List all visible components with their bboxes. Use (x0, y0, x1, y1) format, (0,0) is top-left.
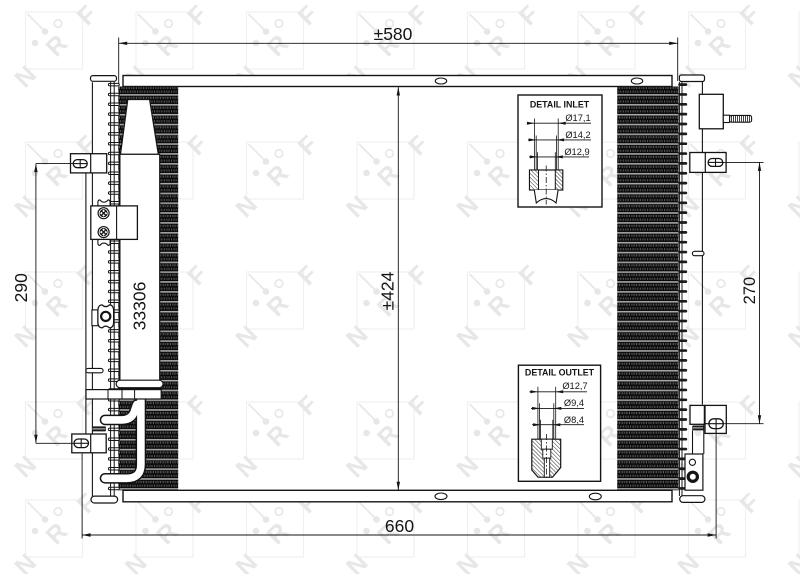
svg-text:Ø14,2: Ø14,2 (565, 130, 590, 140)
svg-text:Ø17,1: Ø17,1 (565, 113, 590, 123)
svg-text:33306: 33306 (130, 282, 150, 331)
svg-text:290: 290 (11, 273, 31, 302)
svg-text:DETAIL OUTLET: DETAIL OUTLET (525, 368, 595, 378)
svg-text:Ø9,4: Ø9,4 (564, 398, 584, 408)
svg-text:DETAIL INLET: DETAIL INLET (530, 100, 590, 110)
svg-text:±580: ±580 (374, 24, 413, 44)
svg-text:Ø12,9: Ø12,9 (564, 147, 589, 157)
svg-text:Ø8,4: Ø8,4 (564, 415, 584, 425)
svg-text:±424: ±424 (378, 271, 398, 310)
svg-text:Ø12,7: Ø12,7 (562, 381, 587, 391)
svg-text:660: 660 (385, 516, 414, 536)
svg-text:270: 270 (741, 277, 759, 305)
